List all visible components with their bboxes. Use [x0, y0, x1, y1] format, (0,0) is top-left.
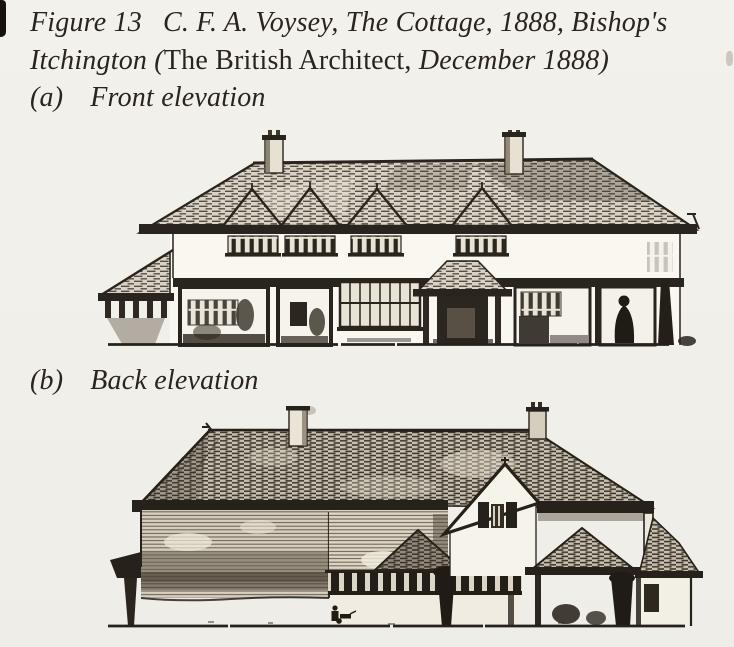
scan-speck	[726, 51, 733, 66]
figure-number: Figure 13	[30, 8, 142, 39]
bay-opening-4	[600, 287, 655, 345]
shuttered-window	[478, 502, 517, 528]
back-eaves-band-right	[537, 501, 654, 513]
front-roof	[139, 159, 699, 233]
sub-caption-title: Front elevation	[90, 82, 265, 113]
upper-window-strip-3	[348, 236, 404, 257]
caption-text: C. F. A. Voysey, The Cottage, 1888, Bish…	[163, 7, 668, 38]
back-buttress	[110, 552, 141, 626]
chimney-left	[262, 130, 286, 173]
bay-opening-1	[180, 287, 268, 345]
sub-caption-index: (b)	[30, 366, 63, 397]
front-elevation-engraving	[95, 130, 710, 350]
veranda-post	[595, 287, 599, 345]
tree-trunk-right	[609, 572, 635, 626]
verge-finial	[202, 423, 213, 432]
bay-opening-3	[515, 287, 590, 345]
bay-opening-2	[278, 287, 331, 345]
figure-caption-line2: Itchington (The British Architect, Decem…	[30, 46, 609, 77]
veranda-end	[98, 234, 174, 344]
ground-bush	[678, 336, 696, 346]
figure-caption-line1: Figure 13C. F. A. Voysey, The Cottage, 1…	[30, 8, 668, 39]
eaves-shadow	[538, 513, 646, 521]
back-elevation-engraving	[88, 402, 708, 642]
back-wall-left	[141, 503, 329, 600]
caption-text: Itchington (	[30, 45, 164, 76]
scan-smudge	[0, 0, 6, 37]
caption-text: December 1888)	[412, 45, 609, 76]
upper-window-strip-2	[282, 236, 338, 257]
sub-caption-b: (b)Back elevation	[30, 366, 259, 397]
journal-title: The British Architect,	[164, 45, 412, 76]
back-chimney-right	[526, 402, 549, 439]
sub-caption-title: Back elevation	[90, 365, 258, 396]
back-main-roof	[141, 423, 653, 508]
back-chimney-left	[286, 406, 310, 446]
back-window-band	[325, 570, 525, 626]
chimney-right	[502, 130, 526, 174]
scanned-book-page: Figure 13C. F. A. Voysey, The Cottage, 1…	[0, 0, 734, 647]
faint-right-window	[647, 242, 673, 272]
sub-caption-index: (a)	[30, 83, 63, 114]
upper-window-strip-4	[453, 236, 509, 257]
sub-caption-a: (a)Front elevation	[30, 83, 266, 114]
upper-window-strip-1	[225, 236, 281, 257]
